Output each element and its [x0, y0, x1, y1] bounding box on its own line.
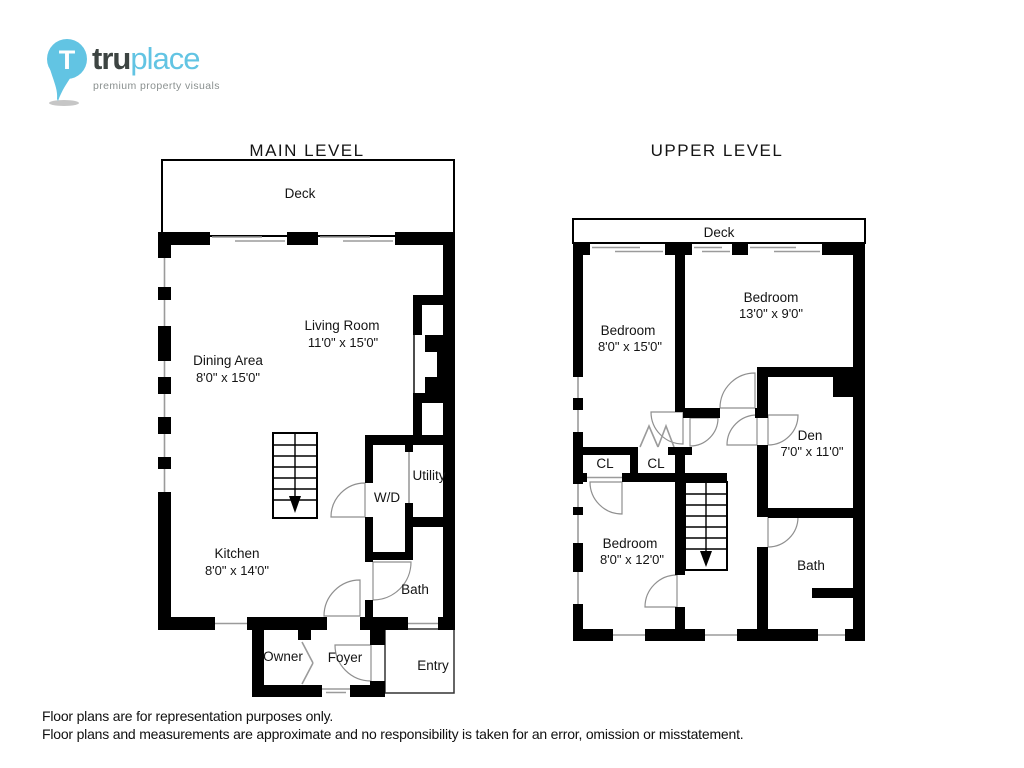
upper-level-title: UPPER LEVEL: [651, 141, 784, 160]
room-label-bedroom-top: Bedroom: [744, 290, 799, 305]
main-stairs: [273, 433, 317, 518]
room-dims-bedroom-lower: 8'0" x 12'0": [600, 552, 664, 567]
room-dims-den: 7'0" x 11'0": [780, 444, 843, 459]
room-dims-dining: 8'0" x 15'0": [196, 370, 260, 385]
room-label-cl2: CL: [647, 456, 665, 471]
room-label-den: Den: [798, 428, 823, 443]
room-label-bedroom-left: Bedroom: [601, 323, 656, 338]
room-label-kitchen: Kitchen: [214, 546, 259, 561]
room-label-living: Living Room: [304, 318, 379, 333]
room-label-bedroom-lower: Bedroom: [603, 536, 658, 551]
room-label-cl1: CL: [596, 456, 614, 471]
room-dims-bedroom-top: 13'0" x 9'0": [739, 306, 803, 321]
room-label-owner: Owner: [263, 649, 303, 664]
main-deck-label: Deck: [285, 186, 316, 201]
disclaimer-line-1: Floor plans are for representation purpo…: [42, 708, 743, 726]
disclaimer: Floor plans are for representation purpo…: [42, 708, 743, 743]
upper-stairs: [685, 482, 727, 570]
room-label-dining: Dining Area: [193, 353, 263, 368]
room-label-foyer: Foyer: [328, 650, 363, 665]
room-dims-bedroom-left: 8'0" x 15'0": [598, 339, 662, 354]
room-label-entry: Entry: [417, 658, 449, 673]
disclaimer-line-2: Floor plans and measurements are approxi…: [42, 726, 743, 744]
room-label-bath-upper: Bath: [797, 558, 825, 573]
main-level-plan: MAIN LEVEL Deck Living Room 11'0" x 15'0…: [158, 141, 455, 697]
floor-plans-canvas: MAIN LEVEL Deck Living Room 11'0" x 15'0…: [0, 0, 1024, 768]
page: T truplace premium property visuals: [0, 0, 1024, 768]
main-level-title: MAIN LEVEL: [249, 141, 364, 160]
room-label-wd: W/D: [374, 490, 400, 505]
room-dims-kitchen: 8'0" x 14'0": [205, 563, 269, 578]
owner-bifold-door: [302, 642, 313, 684]
upper-level-plan: UPPER LEVEL Deck Bedroom 8'0" x 15'0" Be…: [573, 141, 865, 641]
room-label-bath-main: Bath: [401, 582, 429, 597]
fireplace-notch: [425, 352, 437, 377]
upper-deck-label: Deck: [704, 225, 735, 240]
room-dims-living: 11'0" x 15'0": [308, 335, 379, 350]
room-label-utility: Utility: [413, 468, 446, 483]
